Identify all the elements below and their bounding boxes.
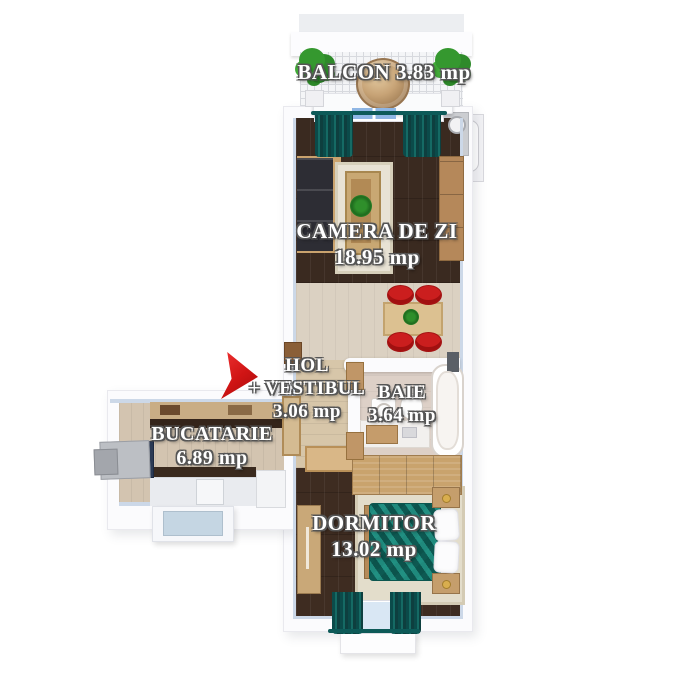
room-label-baie: BAIE 3.64 mp — [368, 381, 436, 427]
lamp-icon — [442, 494, 451, 503]
plant-icon — [403, 309, 419, 325]
plant-pot — [305, 90, 324, 107]
nightstand — [432, 573, 460, 594]
dining-chair — [387, 285, 414, 305]
room-name: BUCATARIE — [151, 422, 273, 446]
room-area: 13.02 mp — [312, 537, 436, 563]
room-label-bucatarie: BUCATARIE 6.89 mp — [151, 422, 273, 471]
room-name: HOL — [249, 354, 365, 377]
room-label-camera-de-zi: CAMERA DE ZI 18.95 mp — [296, 219, 457, 270]
kitchen-sink — [163, 511, 223, 536]
room-area: 3.83 mp — [396, 60, 471, 84]
room-name: BALCON — [297, 60, 390, 84]
room-label-balcon: BALCON 3.83 mp — [297, 60, 470, 86]
room-label-hol: HOL + VESTIBUL 3.06 mp — [249, 354, 365, 424]
pillow — [433, 508, 460, 542]
room-label-dormitor: DORMITOR 13.02 mp — [312, 511, 436, 562]
room-area: 3.06 mp — [249, 400, 365, 423]
curtain-rod — [328, 629, 420, 633]
wall-pillar — [447, 352, 459, 372]
room-area: 18.95 mp — [296, 245, 457, 271]
sink-basin-small — [402, 427, 417, 438]
room-name: BAIE — [368, 381, 436, 404]
curtain-rod — [311, 111, 447, 115]
dining-chair — [415, 332, 442, 352]
dishwasher — [196, 479, 224, 505]
window-ledge — [340, 632, 416, 654]
dresser-handle — [306, 527, 309, 569]
nightstand — [432, 487, 460, 508]
bedroom-window-glass — [361, 602, 392, 630]
room-name: DORMITOR — [312, 511, 436, 537]
room-area: 3.64 mp — [368, 404, 436, 427]
kitchen-counter-item — [160, 405, 180, 415]
plant-pot — [441, 90, 460, 107]
plant-icon — [350, 195, 372, 217]
ac-unit-duct — [94, 449, 119, 476]
dining-chair — [415, 285, 442, 305]
bathroom-door-leaf — [346, 432, 364, 460]
lamp-icon — [442, 580, 451, 589]
bathtub-basin — [436, 371, 459, 450]
room-name: + VESTIBUL — [249, 377, 365, 400]
room-area: 6.89 mp — [151, 446, 273, 470]
vanity-wood-box — [366, 425, 398, 444]
curtain — [403, 112, 441, 157]
fridge — [256, 470, 286, 508]
pipe-icon — [448, 116, 466, 134]
curtain — [315, 112, 353, 157]
dining-chair — [387, 332, 414, 352]
pillow — [433, 540, 460, 573]
curtain — [390, 592, 421, 634]
floorplan-canvas: BALCON 3.83 mp CAMERA DE ZI 18.95 mp HOL… — [0, 0, 700, 700]
curtain — [332, 592, 363, 634]
room-name: CAMERA DE ZI — [296, 219, 457, 245]
